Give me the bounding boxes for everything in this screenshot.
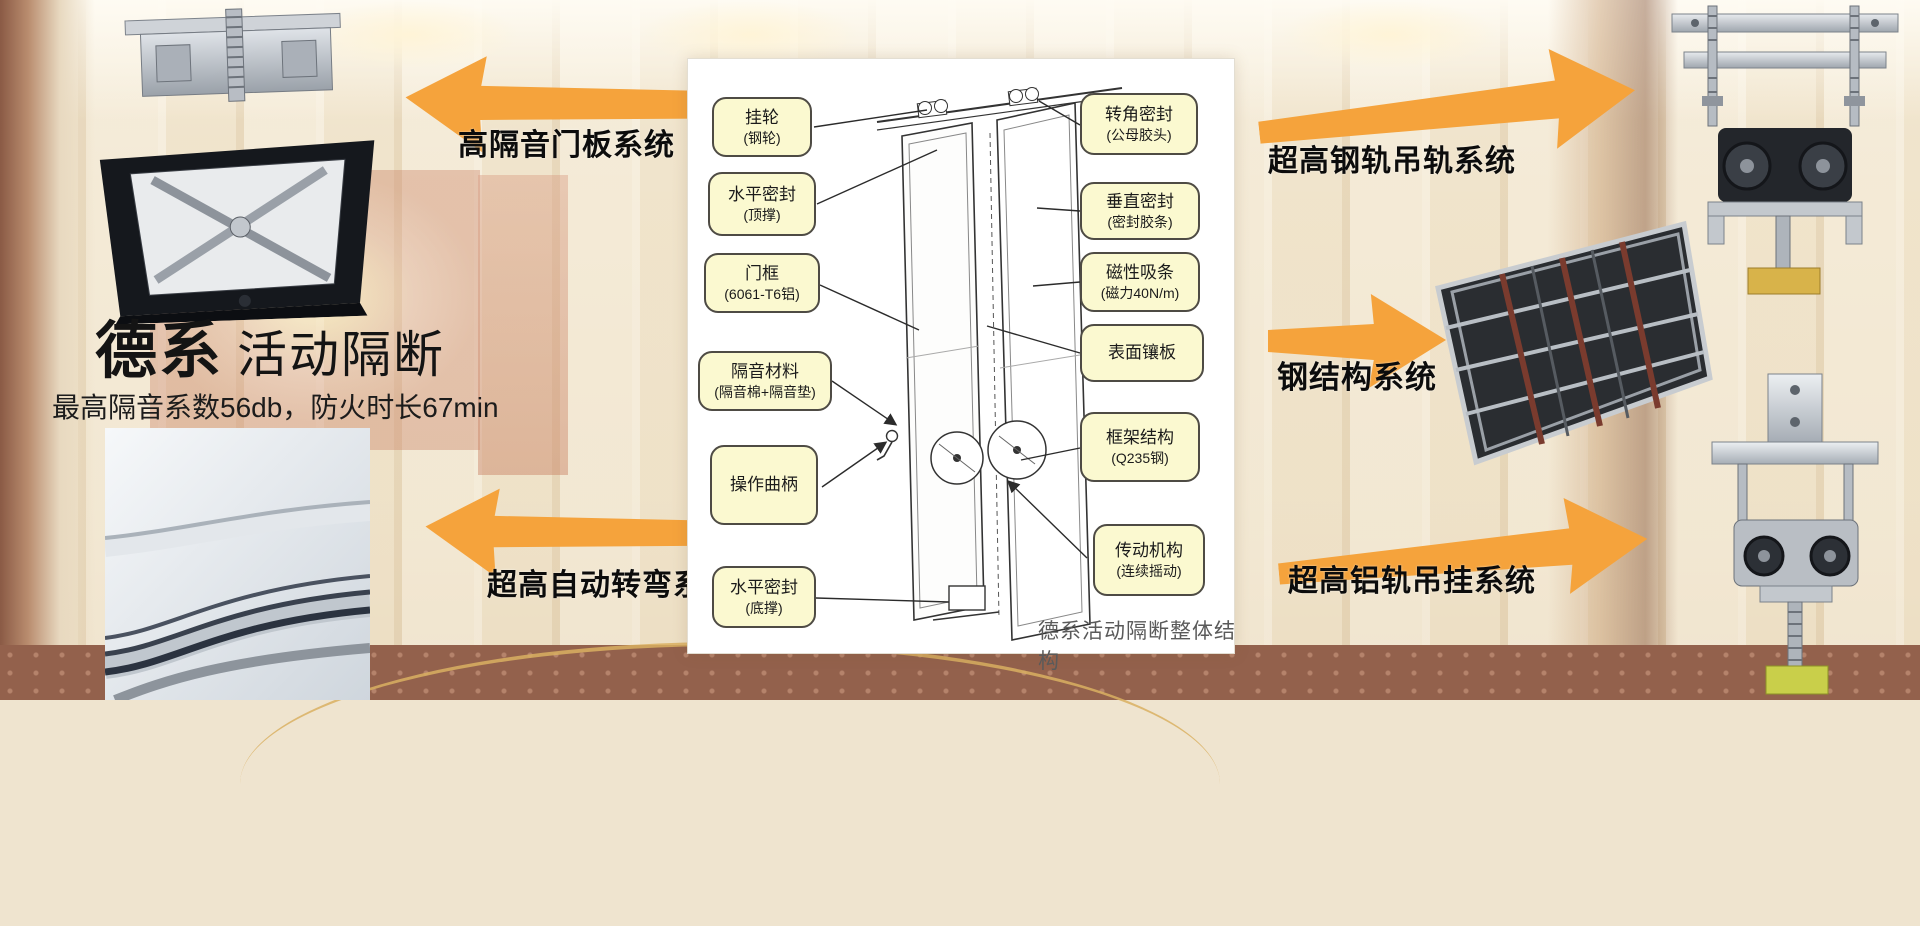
callout-text: (顶撑) [743, 206, 780, 224]
callout-transmission-mechanism: 传动机构 (连续摇动) [1093, 524, 1205, 596]
callout-text: 框架结构 [1106, 427, 1174, 449]
callout-text: (隔音棉+隔音垫) [714, 383, 816, 401]
diagram-caption: 德系活动隔断整体结构 [1038, 615, 1238, 675]
callout-text: 操作曲柄 [730, 474, 798, 496]
product-title-type: 活动隔断 [237, 315, 445, 387]
callout-text: 挂轮 [745, 107, 779, 129]
callout-text: (底撑) [745, 599, 782, 617]
background-left-wall [0, 0, 95, 700]
product-title-brand: 德系 [95, 300, 223, 390]
callout-text: 水平密封 [728, 184, 796, 206]
callout-text: 水平密封 [730, 577, 798, 599]
label-aluminum-rail-system: 超高铝轨吊挂系统 [1288, 556, 1536, 600]
label-steel-structure-system: 钢结构系统 [1277, 352, 1437, 397]
callout-surface-panel: 表面镶板 [1080, 324, 1204, 382]
product-subtitle: 最高隔音系数56db，防火时长67min [52, 386, 532, 426]
aluminum-rail-trolley-photo [1672, 370, 1920, 700]
callout-text: (公母胶头) [1106, 126, 1171, 144]
callout-text: 磁性吸条 [1106, 262, 1174, 284]
callout-text: 门框 [745, 263, 779, 285]
callout-text: (Q235钢) [1111, 449, 1169, 467]
callout-text: 转角密封 [1105, 104, 1173, 126]
callout-frame-structure: 框架结构 (Q235钢) [1080, 412, 1200, 482]
callout-door-frame: 门框 (6061-T6铝) [704, 253, 820, 313]
callout-text: 表面镶板 [1108, 342, 1176, 364]
callout-text: 传动机构 [1115, 540, 1183, 562]
callout-text: (6061-T6铝) [724, 285, 799, 303]
callout-operating-crank: 操作曲柄 [710, 445, 818, 525]
callout-corner-seal: 转角密封 (公母胶头) [1080, 93, 1198, 155]
label-steel-rail-system: 超高钢轨吊轨系统 [1268, 136, 1516, 180]
callout-text: (钢轮) [743, 129, 780, 147]
carpet-gold-arc [240, 642, 1220, 926]
callout-hanger-wheel: 挂轮 (钢轮) [712, 97, 812, 157]
callout-text: (连续摇动) [1116, 562, 1181, 580]
curved-track-closeup-photo [105, 428, 370, 700]
callout-text: 垂直密封 [1106, 191, 1174, 213]
callout-magnetic-strip: 磁性吸条 (磁力40N/m) [1080, 252, 1200, 312]
callout-vertical-seal: 垂直密封 (密封胶条) [1080, 182, 1200, 240]
callout-horizontal-seal-bottom: 水平密封 (底撑) [712, 566, 816, 628]
callout-text: 隔音材料 [731, 361, 799, 383]
door-panel-mechanism-photo [85, 0, 396, 325]
label-door-panel-system: 高隔音门板系统 [458, 120, 675, 164]
product-title: 德系 活动隔断 [95, 300, 575, 390]
callout-horizontal-seal-top: 水平密封 (顶撑) [708, 172, 816, 236]
callout-sound-insulation: 隔音材料 (隔音棉+隔音垫) [698, 351, 832, 411]
callout-text: (密封胶条) [1107, 213, 1172, 231]
callout-text: (磁力40N/m) [1101, 284, 1180, 302]
